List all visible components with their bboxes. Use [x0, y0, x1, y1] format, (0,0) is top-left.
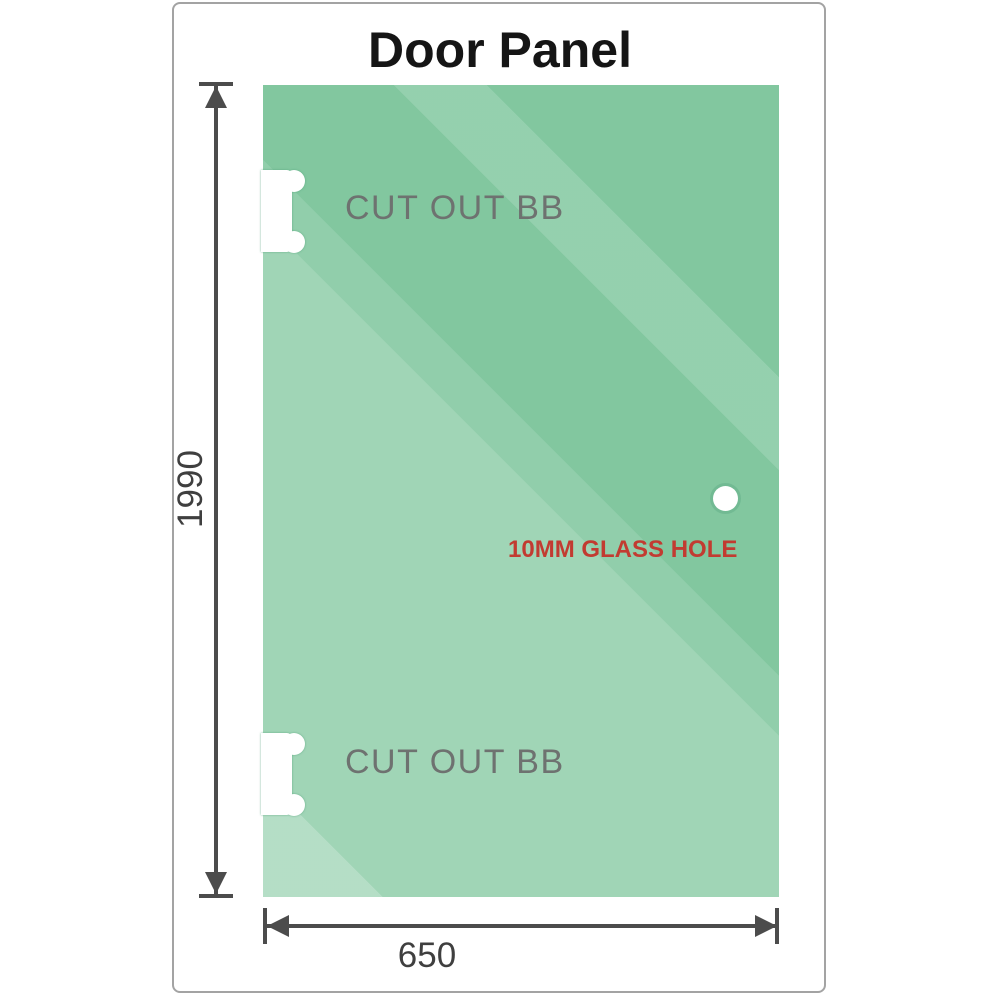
- height-dimension-line: [214, 85, 218, 896]
- glass-hole-label: 10MM GLASS HOLE: [508, 537, 714, 563]
- diagram-title: Door Panel: [300, 22, 700, 78]
- cutout-top-label: CUT OUT BB: [345, 189, 575, 227]
- hinge-cutout-bottom-icon: [261, 730, 311, 818]
- height-dimension-cap-bottom: [199, 894, 233, 898]
- arrow-down-icon: [205, 872, 227, 894]
- cutout-bottom-label: CUT OUT BB: [345, 743, 575, 781]
- arrow-left-icon: [267, 915, 289, 937]
- width-dimension-line: [266, 924, 778, 928]
- width-dimension-value: 650: [357, 936, 497, 976]
- glass-hole-icon: [713, 486, 738, 511]
- arrow-right-icon: [755, 915, 777, 937]
- arrow-up-icon: [205, 86, 227, 108]
- height-dimension-value: 1990: [170, 409, 212, 569]
- door-panel-diagram: Door Panel CUT OUT BB CUT OUT BB 10MM GL…: [0, 0, 1000, 1000]
- hinge-cutout-top-icon: [261, 167, 311, 255]
